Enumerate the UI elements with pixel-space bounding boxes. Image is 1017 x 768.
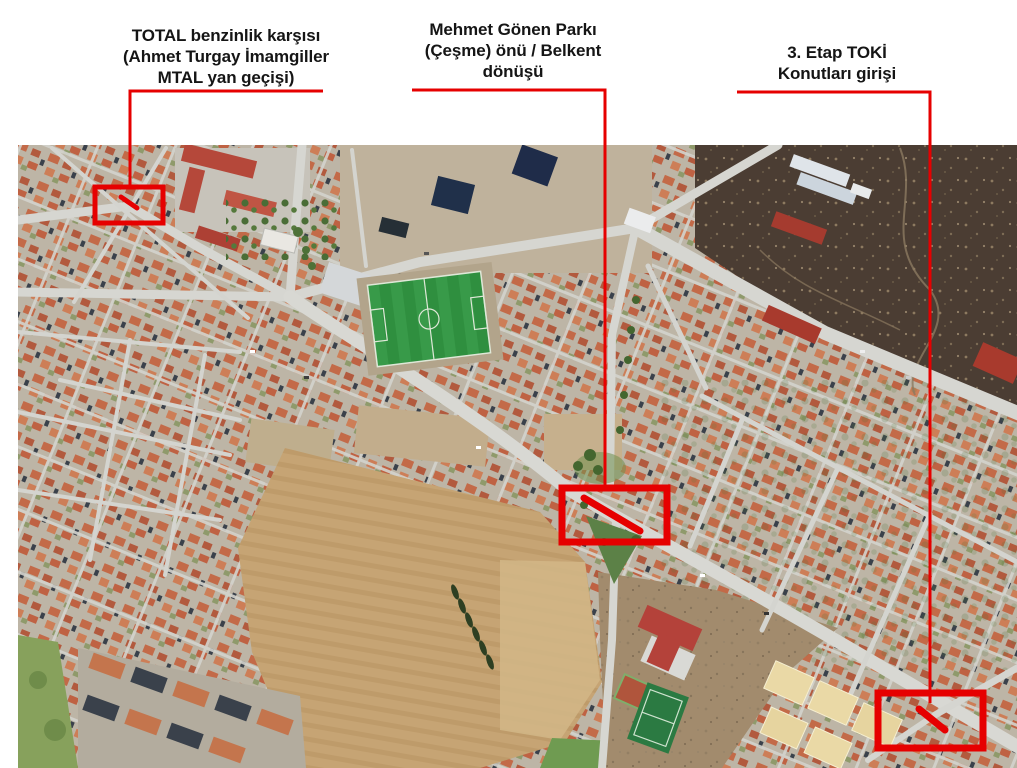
callout-label-line: dönüşü (392, 61, 634, 82)
callout-label-line: (Ahmet Turgay İmamgiller (95, 46, 357, 67)
callout-label-line: MTAL yan geçişi) (95, 67, 357, 88)
callout-label-line: Konutları girişi (727, 63, 947, 84)
callout-label-line: TOTAL benzinlik karşısı (95, 25, 357, 46)
callout-label-total-station: TOTAL benzinlik karşısı (Ahmet Turgay İm… (95, 25, 357, 88)
park-trees (226, 198, 338, 270)
annotated-map-page: { "page": { "background_color": "#ffffff… (0, 0, 1017, 768)
callout-label-toki-entrance: 3. Etap TOKİ Konutları girişi (727, 42, 947, 84)
callout-label-line: Mehmet Gönen Parkı (392, 19, 634, 40)
callout-label-line: 3. Etap TOKİ (727, 42, 947, 63)
football-field (357, 262, 504, 376)
callout-label-line: (Çeşme) önü / Belkent (392, 40, 634, 61)
callout-label-mehmet-gonen-park: Mehmet Gönen Parkı (Çeşme) önü / Belkent… (392, 19, 634, 82)
satellite-map-figure (0, 0, 1017, 768)
satellite-map (18, 143, 1017, 768)
